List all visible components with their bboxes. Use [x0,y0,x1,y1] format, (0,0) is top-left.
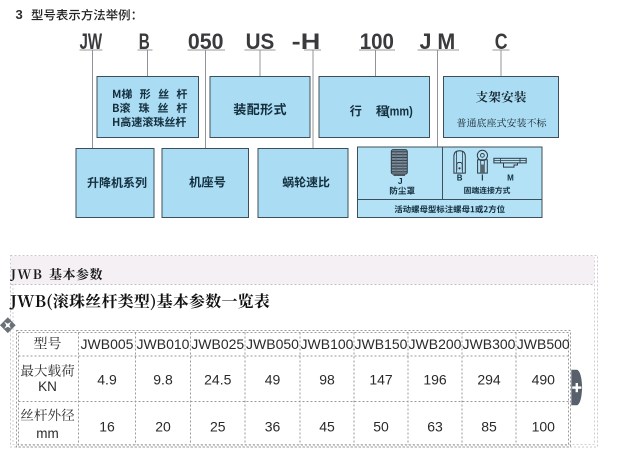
svg-text:16: 16 [99,419,115,435]
svg-text:294: 294 [477,371,501,387]
svg-text:JWB300: JWB300 [463,336,516,352]
svg-text:490: 490 [532,371,556,387]
svg-text:196: 196 [423,371,447,387]
svg-text:4.9: 4.9 [97,371,117,387]
svg-text:147: 147 [369,371,393,387]
svg-text:25: 25 [210,419,226,435]
svg-text:JWB200: JWB200 [409,336,462,352]
svg-text:M: M [507,173,514,182]
svg-text:63: 63 [427,419,443,435]
svg-text:45: 45 [319,419,335,435]
svg-text:I: I [481,173,483,182]
svg-text:20: 20 [155,419,171,435]
svg-text:mm: mm [36,426,59,441]
svg-text:JWB025: JWB025 [191,336,244,352]
svg-text:85: 85 [481,419,497,435]
svg-text:JWB050: JWB050 [246,336,299,352]
svg-text:JWB005: JWB005 [81,336,134,352]
svg-text:36: 36 [265,419,281,435]
svg-text:JWB010: JWB010 [137,336,190,352]
svg-text:B: B [457,173,463,182]
svg-text:JWB500: JWB500 [517,336,570,352]
svg-text:(mm): (mm) [386,104,413,118]
svg-text:50: 50 [373,419,389,435]
svg-text:24.5: 24.5 [204,371,231,387]
svg-text:KN: KN [38,379,57,394]
svg-text:100: 100 [532,419,556,435]
svg-text:98: 98 [319,371,335,387]
svg-text:9.8: 9.8 [153,371,173,387]
svg-text:3: 3 [16,7,23,22]
svg-text:JWB100: JWB100 [301,336,354,352]
svg-text:JWB150: JWB150 [355,336,408,352]
svg-text:49: 49 [265,371,281,387]
svg-text:J: J [398,176,403,186]
